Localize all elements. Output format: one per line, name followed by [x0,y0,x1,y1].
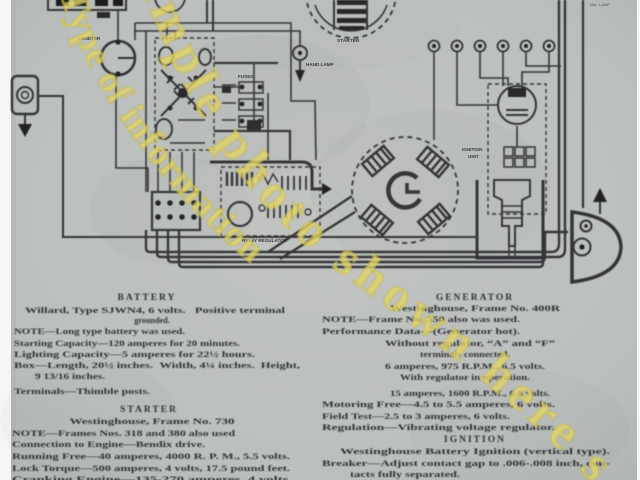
svg-text:Starting Capacity—120 amperes: Starting Capacity—120 amperes for 20 min… [14,339,240,348]
svg-text:grounded.: grounded. [134,316,170,325]
svg-text:UNIT: UNIT [468,154,479,159]
svg-text:Willard, Type SJWN4, 6 volts.: Willard, Type SJWN4, 6 volts. Positive t… [25,306,286,315]
svg-text:Box—Length, 20½ inches. Width: Box—Length, 20½ inches. Width, 4¼ inches… [14,361,300,370]
svg-text:9 13/16 inches.: 9 13/16 inches. [35,372,105,381]
svg-text:NOTE—Frames Nos. 318 and 380 a: NOTE—Frames Nos. 318 and 380 also used [12,429,236,438]
svg-text:Westinghouse, Frame No. 730: Westinghouse, Frame No. 730 [70,417,235,426]
svg-text:Terminals—Thimble posts.: Terminals—Thimble posts. [14,387,150,396]
svg-text:FUSES: FUSES [238,74,253,79]
svg-text:Field Test—2.5 to 3 amperes, 6: Field Test—2.5 to 3 amperes, 6 volts. [322,412,510,421]
svg-text:TAIL LAMP: TAIL LAMP [589,2,610,7]
svg-text:Connection to Engine—Bendix dr: Connection to Engine—Bendix drive. [12,440,205,449]
svg-text:tacts fully separated.: tacts fully separated. [350,470,460,479]
svg-text:STARTER: STARTER [120,405,178,415]
svg-text:Lock Torque—500 amperes, 4 vol: Lock Torque—500 amperes, 4 volts, 17.5 p… [12,464,290,473]
svg-text:Running Free—40 amperes, 4000: Running Free—40 amperes, 4000 R. P. M., … [12,452,290,461]
svg-text:NOTE—Long type battery was use: NOTE—Long type battery was used. [14,327,185,336]
svg-text:BATTERY: BATTERY [118,293,177,303]
svg-text:HAND LAMP: HAND LAMP [306,62,334,67]
svg-text:Cranking Engine—135-270 ampere: Cranking Engine—135-270 amperes, 4 volts… [12,475,292,480]
svg-text:STARTER: STARTER [337,38,360,44]
svg-text:IGNITION: IGNITION [462,147,483,152]
svg-text:IGNITION: IGNITION [444,435,506,445]
svg-text:Lighting Capacity—5 amperes fo: Lighting Capacity—5 amperes for 22½ hour… [14,350,255,359]
